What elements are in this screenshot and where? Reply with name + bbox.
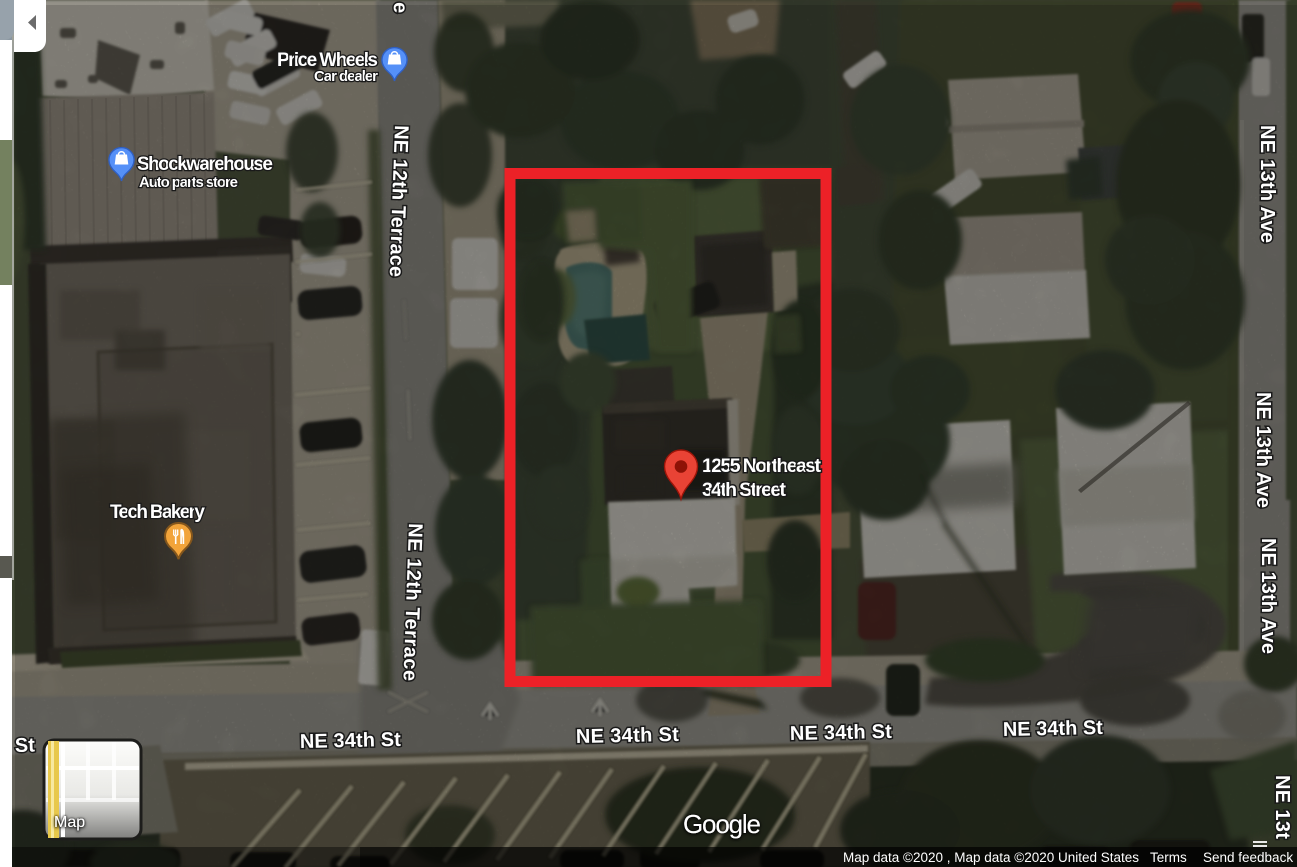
svg-text:Tech Bakery: Tech Bakery [110,502,205,523]
svg-text:NE 13t: NE 13t [1271,775,1293,839]
svg-text:NE 34th St: NE 34th St [790,721,893,745]
svg-text:NE 34th St: NE 34th St [1003,717,1104,741]
svg-text:Map data ©2020 , Map data ©202: Map data ©2020 , Map data ©2020 [843,850,1054,865]
svg-text:NE 13th Ave: NE 13th Ave [1256,125,1278,243]
svg-text:Car dealer: Car dealer [314,68,378,85]
svg-text:NE 13th Ave: NE 13th Ave [1257,538,1279,654]
svg-text:NE 13th Ave: NE 13th Ave [1252,392,1274,508]
svg-text:1255 Northeast: 1255 Northeast [702,455,822,477]
svg-text:Google: Google [683,809,761,839]
svg-text:e: e [389,2,411,14]
svg-text:United States: United States [1058,850,1139,865]
svg-text:Terms: Terms [1150,850,1187,865]
svg-text:Map: Map [54,814,85,831]
svg-text:Auto parts store: Auto parts store [139,174,238,191]
svg-text:Send feedback: Send feedback [1203,850,1293,865]
svg-text:NE 34th St: NE 34th St [576,724,680,748]
svg-text:34th Street: 34th Street [702,479,787,501]
svg-text:Shockwarehouse: Shockwarehouse [137,154,273,175]
svg-text:St: St [15,734,36,757]
svg-text:NE 34th St: NE 34th St [300,729,402,753]
